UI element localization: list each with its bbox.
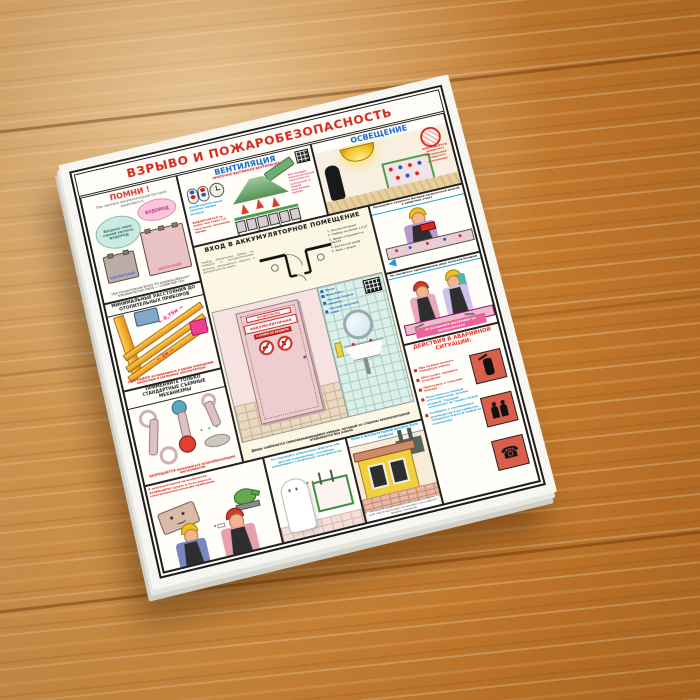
acid-battery-label: КИСЛОТНЫЙ — [108, 270, 138, 281]
alkaline-battery-illustration: ЩЕЛОЧНОЙ — [140, 223, 193, 277]
drain-pipe-icon — [364, 358, 372, 374]
entrance-text: Тамбур обязателен. Дверь из тамбура в ак… — [201, 250, 256, 275]
safety-poster-board: ВЗРЫВО И ПОЖАРОБЕЗОПАСНОСТЬ ПОМНИ ! При … — [59, 74, 558, 590]
electrode-rod — [318, 472, 323, 484]
no-smoking-sign-icon — [257, 339, 275, 357]
vent-grille-icon — [294, 149, 310, 164]
charging-stand-icon — [312, 474, 355, 512]
electrode-rod — [329, 469, 334, 481]
door-handle — [303, 355, 307, 359]
evacuation-people-icon — [480, 391, 519, 428]
blue-arrow-icon — [387, 259, 397, 268]
airflow-arrow-icon — [270, 196, 280, 207]
worker-silhouette — [323, 164, 346, 201]
sparks-icon: ✦ ✦ ✦ — [199, 423, 221, 434]
fire-extinguisher-icon — [469, 348, 508, 385]
wrench-icon — [158, 444, 180, 466]
closed-window — [367, 462, 390, 490]
towel-icon — [334, 342, 344, 358]
closed-window — [388, 457, 411, 485]
ventilation-note: Вентиляция аккумуляторной выполняется от… — [288, 168, 318, 195]
no-open-flame-sign-icon — [276, 334, 294, 352]
plan-legend: 1. Аккумуляторная 2. Тамбур не менее 1,5… — [327, 221, 375, 255]
photo-scene: { "colors":{"title_red":"#d42b20","secti… — [0, 0, 700, 700]
lighting-ban-text: ЗАПРЕЩАЕТСЯ применять светильники открыт… — [420, 142, 453, 165]
airflow-arrow-icon — [254, 198, 264, 209]
flame-icon — [214, 525, 216, 527]
debris-pile — [203, 432, 231, 450]
puller-tool-icon — [177, 434, 198, 455]
poster-printed-area: ВЗРЫВО И ПОЖАРОБЕЗОПАСНОСТЬ ПОМНИ ! При … — [74, 89, 541, 573]
airflow-arrow-icon — [239, 203, 249, 214]
acid-battery-illustration: КИСЛОТНЫЙ — [102, 250, 139, 284]
battery-terminals — [144, 222, 178, 234]
vent-grate-icon — [363, 277, 383, 294]
battery-terminals — [107, 249, 129, 259]
battery-icon — [189, 318, 209, 336]
alkaline-battery-label: ЩЕЛОЧНОЙ — [149, 260, 191, 273]
ventilation-off-text: ВЫКЛЮЧАЕТСЯ не ранее чем через 1,5 часа … — [192, 214, 232, 235]
poster-sheet: ВЗРЫВО И ПОЖАРОБЕЗОПАСНОСТЬ ПОМНИ ! При … — [69, 85, 546, 579]
cigarette-icon — [217, 523, 226, 529]
telephone-icon: ☎ — [491, 434, 530, 471]
wrench-icon — [149, 419, 159, 456]
acid-vapor-cloud: Вредные пары серной кислоты ВОДОРОД — [92, 211, 144, 253]
clock-icon — [208, 181, 226, 198]
